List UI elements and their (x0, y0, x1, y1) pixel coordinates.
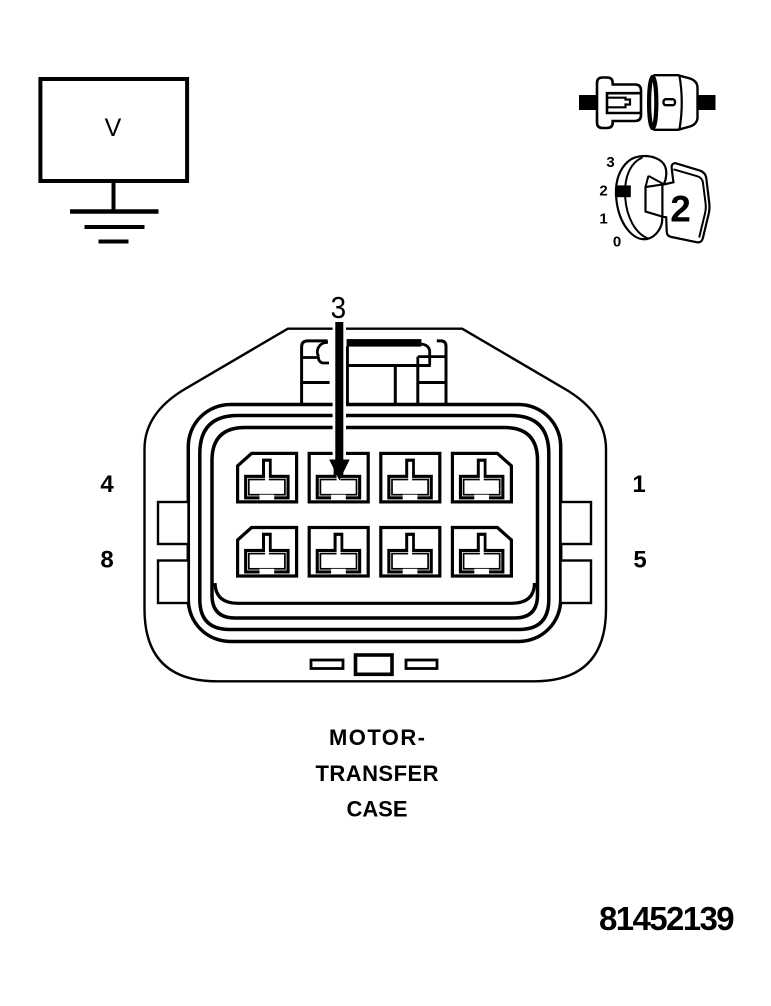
svg-text:81452139: 81452139 (599, 900, 734, 937)
svg-text:1: 1 (599, 211, 607, 228)
svg-text:2: 2 (670, 189, 691, 230)
svg-text:CASE: CASE (347, 797, 408, 822)
svg-text:2: 2 (599, 183, 607, 200)
svg-text:TRANSFER: TRANSFER (316, 761, 439, 786)
svg-text:8: 8 (100, 547, 113, 574)
svg-text:3: 3 (606, 154, 614, 171)
svg-text:1: 1 (632, 471, 645, 498)
svg-text:V: V (105, 114, 122, 142)
svg-text:0: 0 (613, 234, 621, 251)
svg-text:4: 4 (100, 471, 114, 498)
svg-text:3: 3 (331, 290, 347, 325)
svg-text:5: 5 (633, 547, 646, 574)
svg-text:MOTOR-: MOTOR- (329, 725, 425, 750)
